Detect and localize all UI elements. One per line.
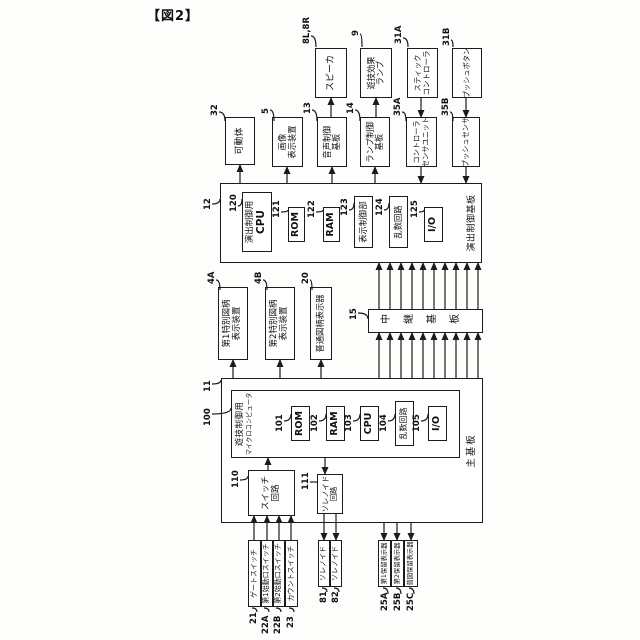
ref-label-100: 100 — [203, 408, 213, 426]
solenoid-82-box: ソレノイド — [330, 540, 342, 587]
main-board-label: 主基板 — [463, 378, 477, 523]
ref-label-8L8R: 8L,8R — [302, 17, 312, 44]
special-symbol-display1-box: 第1特別図柄表示装置 — [218, 287, 248, 360]
ref-label-14: 14 — [346, 102, 356, 114]
ref-label-32: 32 — [210, 104, 220, 116]
speaker-box: スピーカ — [315, 48, 347, 98]
ref-label-31A: 31A — [394, 26, 404, 44]
ref-label-123: 123 — [340, 198, 350, 216]
lamp-control-board-box: ランプ制御基板 — [360, 117, 390, 167]
rom-101-box: ROM — [291, 406, 310, 441]
ref-label-13: 13 — [303, 102, 313, 114]
effect-board-label: 演出制御基板 — [464, 183, 477, 263]
push-button-box: プッシュボタン — [452, 48, 482, 98]
ref-label-35B: 35B — [441, 98, 451, 116]
ram-102-box: RAM — [326, 406, 345, 441]
ref-label-9: 9 — [351, 30, 361, 36]
display-control-123-box: 表示制御部 — [354, 196, 373, 248]
ref-label-12: 12 — [203, 198, 213, 210]
ref-label-110: 110 — [231, 470, 241, 488]
ref-label-124: 124 — [375, 198, 385, 216]
count-switch-box: カウントスイッチ — [285, 540, 298, 607]
ref-label-120: 120 — [229, 194, 239, 212]
hold-display1-box: 第1保留表示器 — [378, 540, 391, 587]
io-105-box: I/O — [428, 406, 447, 441]
ref-label-122: 122 — [307, 200, 317, 218]
ref-label-20: 20 — [301, 272, 311, 284]
ref-label-5: 5 — [261, 108, 271, 114]
ref-label-22B: 22B — [273, 616, 283, 634]
sound-control-board-box: 音声制御基板 — [317, 117, 347, 167]
ref-label-23: 23 — [286, 616, 296, 628]
push-sensor-box: プッシュセンサ — [452, 117, 480, 167]
stick-controller-box: スティックコントローラ — [407, 48, 438, 98]
hold-display2-box: 第2保留表示器 — [391, 540, 404, 587]
game-effect-lamp-box: 遊技効果ランプ — [360, 48, 392, 98]
ref-label-101: 101 — [275, 414, 285, 432]
ref-label-102: 102 — [310, 414, 320, 432]
ref-label-4B: 4B — [254, 272, 264, 284]
ref-label-35A: 35A — [393, 98, 403, 116]
ref-label-25B: 25B — [393, 593, 403, 611]
random-circuit-124-box: 乱数回路 — [389, 196, 408, 248]
effect-cpu-120-box: 演出制御用CPU — [242, 192, 272, 252]
ref-label-82: 82 — [331, 591, 341, 603]
start1-switch-box: 第1始動口スイッチ — [261, 540, 273, 607]
image-display-box: 画像表示装置 — [272, 117, 303, 167]
solenoid-81-box: ソレノイド — [318, 540, 330, 587]
ref-label-121: 121 — [272, 200, 282, 218]
special-symbol-display2-box: 第2特別図柄表示装置 — [265, 287, 295, 360]
gate-switch-box: ゲートスイッチ — [248, 540, 261, 607]
ref-label-105: 105 — [412, 414, 422, 432]
ref-label-81: 81 — [319, 591, 329, 603]
ref-label-125: 125 — [410, 200, 420, 218]
start2-switch-box: 第2始動口スイッチ — [273, 540, 285, 607]
io-125-box: I/O — [424, 207, 443, 242]
ref-label-104: 104 — [379, 414, 389, 432]
ram-122-box: RAM — [323, 207, 340, 242]
ref-label-15: 15 — [349, 308, 359, 320]
controller-sensor-unit-box: コントローラセンサユニット — [406, 117, 437, 167]
ref-label-25A: 25A — [380, 593, 390, 611]
ref-label-111: 111 — [301, 472, 311, 490]
hold-display-fu-box: 普図保留表示器 — [404, 540, 418, 587]
micom-label-line2: マイクロコンピュータ — [244, 390, 253, 458]
ref-label-21: 21 — [249, 612, 259, 624]
relay-board: 中継基板 — [368, 309, 483, 333]
normal-symbol-display-box: 普通図柄表示器 — [310, 287, 332, 360]
switch-circuit-box: スイッチ回路 — [248, 470, 295, 516]
cpu-103-box: CPU — [360, 406, 379, 441]
solenoid-circuit-box: ソレノイド回路 — [317, 474, 343, 514]
movable-body-box: 可動体 — [225, 117, 255, 165]
ref-label-103: 103 — [344, 414, 354, 432]
rotated-diagram-stage: 主基板 演出制御基板 遊技制御用 マイクロコンピュータ ゲートスイッチ 第1始動… — [0, 0, 640, 640]
ref-label-4A: 4A — [207, 272, 217, 285]
patent-figure-page: { "caption": "【図2】", "nodes": { "gate": … — [0, 0, 640, 640]
ref-label-22A: 22A — [261, 616, 271, 634]
ref-label-11: 11 — [203, 380, 213, 392]
ref-label-25C: 25C — [406, 593, 416, 611]
ref-label-31B: 31B — [442, 28, 452, 46]
rom-121-box: ROM — [288, 207, 305, 242]
